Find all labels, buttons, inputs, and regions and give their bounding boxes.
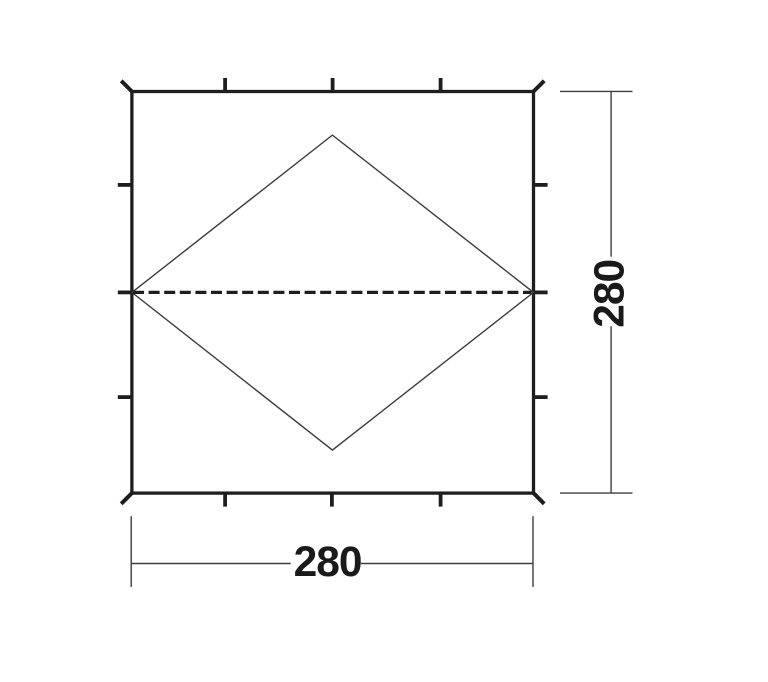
svg-text:280: 280: [294, 539, 362, 586]
svg-text:280: 280: [587, 260, 634, 328]
